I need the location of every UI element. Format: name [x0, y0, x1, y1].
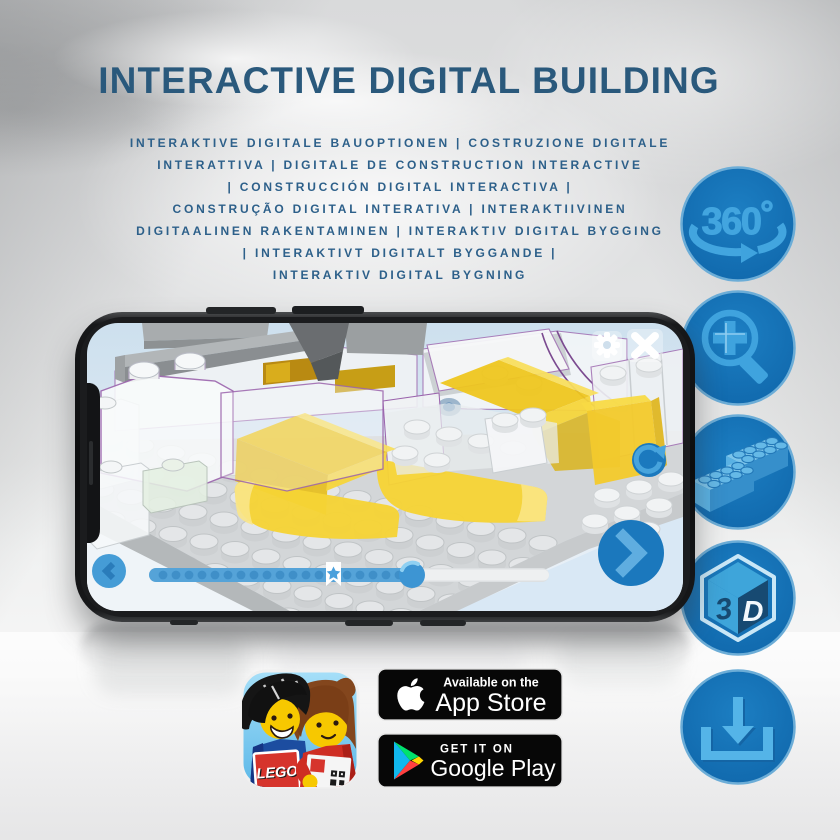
svg-text:LEGO: LEGO	[256, 764, 299, 783]
svg-text:App Store: App Store	[435, 689, 546, 717]
svg-text:360: 360	[702, 201, 761, 243]
svg-text:Available on the: Available on the	[443, 676, 538, 690]
svg-text:D: D	[743, 596, 764, 628]
svg-text:Google Play: Google Play	[430, 755, 556, 781]
svg-text:GET IT ON: GET IT ON	[440, 744, 514, 756]
